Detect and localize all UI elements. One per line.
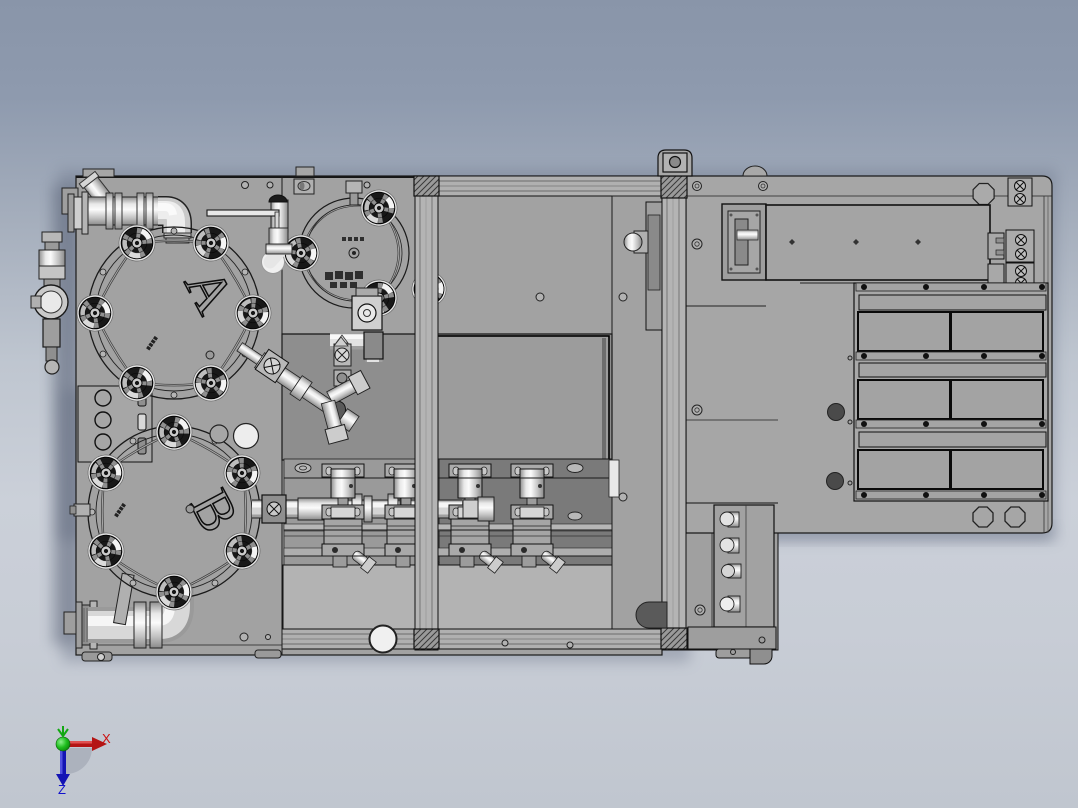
svg-text:Z: Z: [58, 782, 66, 797]
svg-text:X: X: [102, 731, 111, 746]
